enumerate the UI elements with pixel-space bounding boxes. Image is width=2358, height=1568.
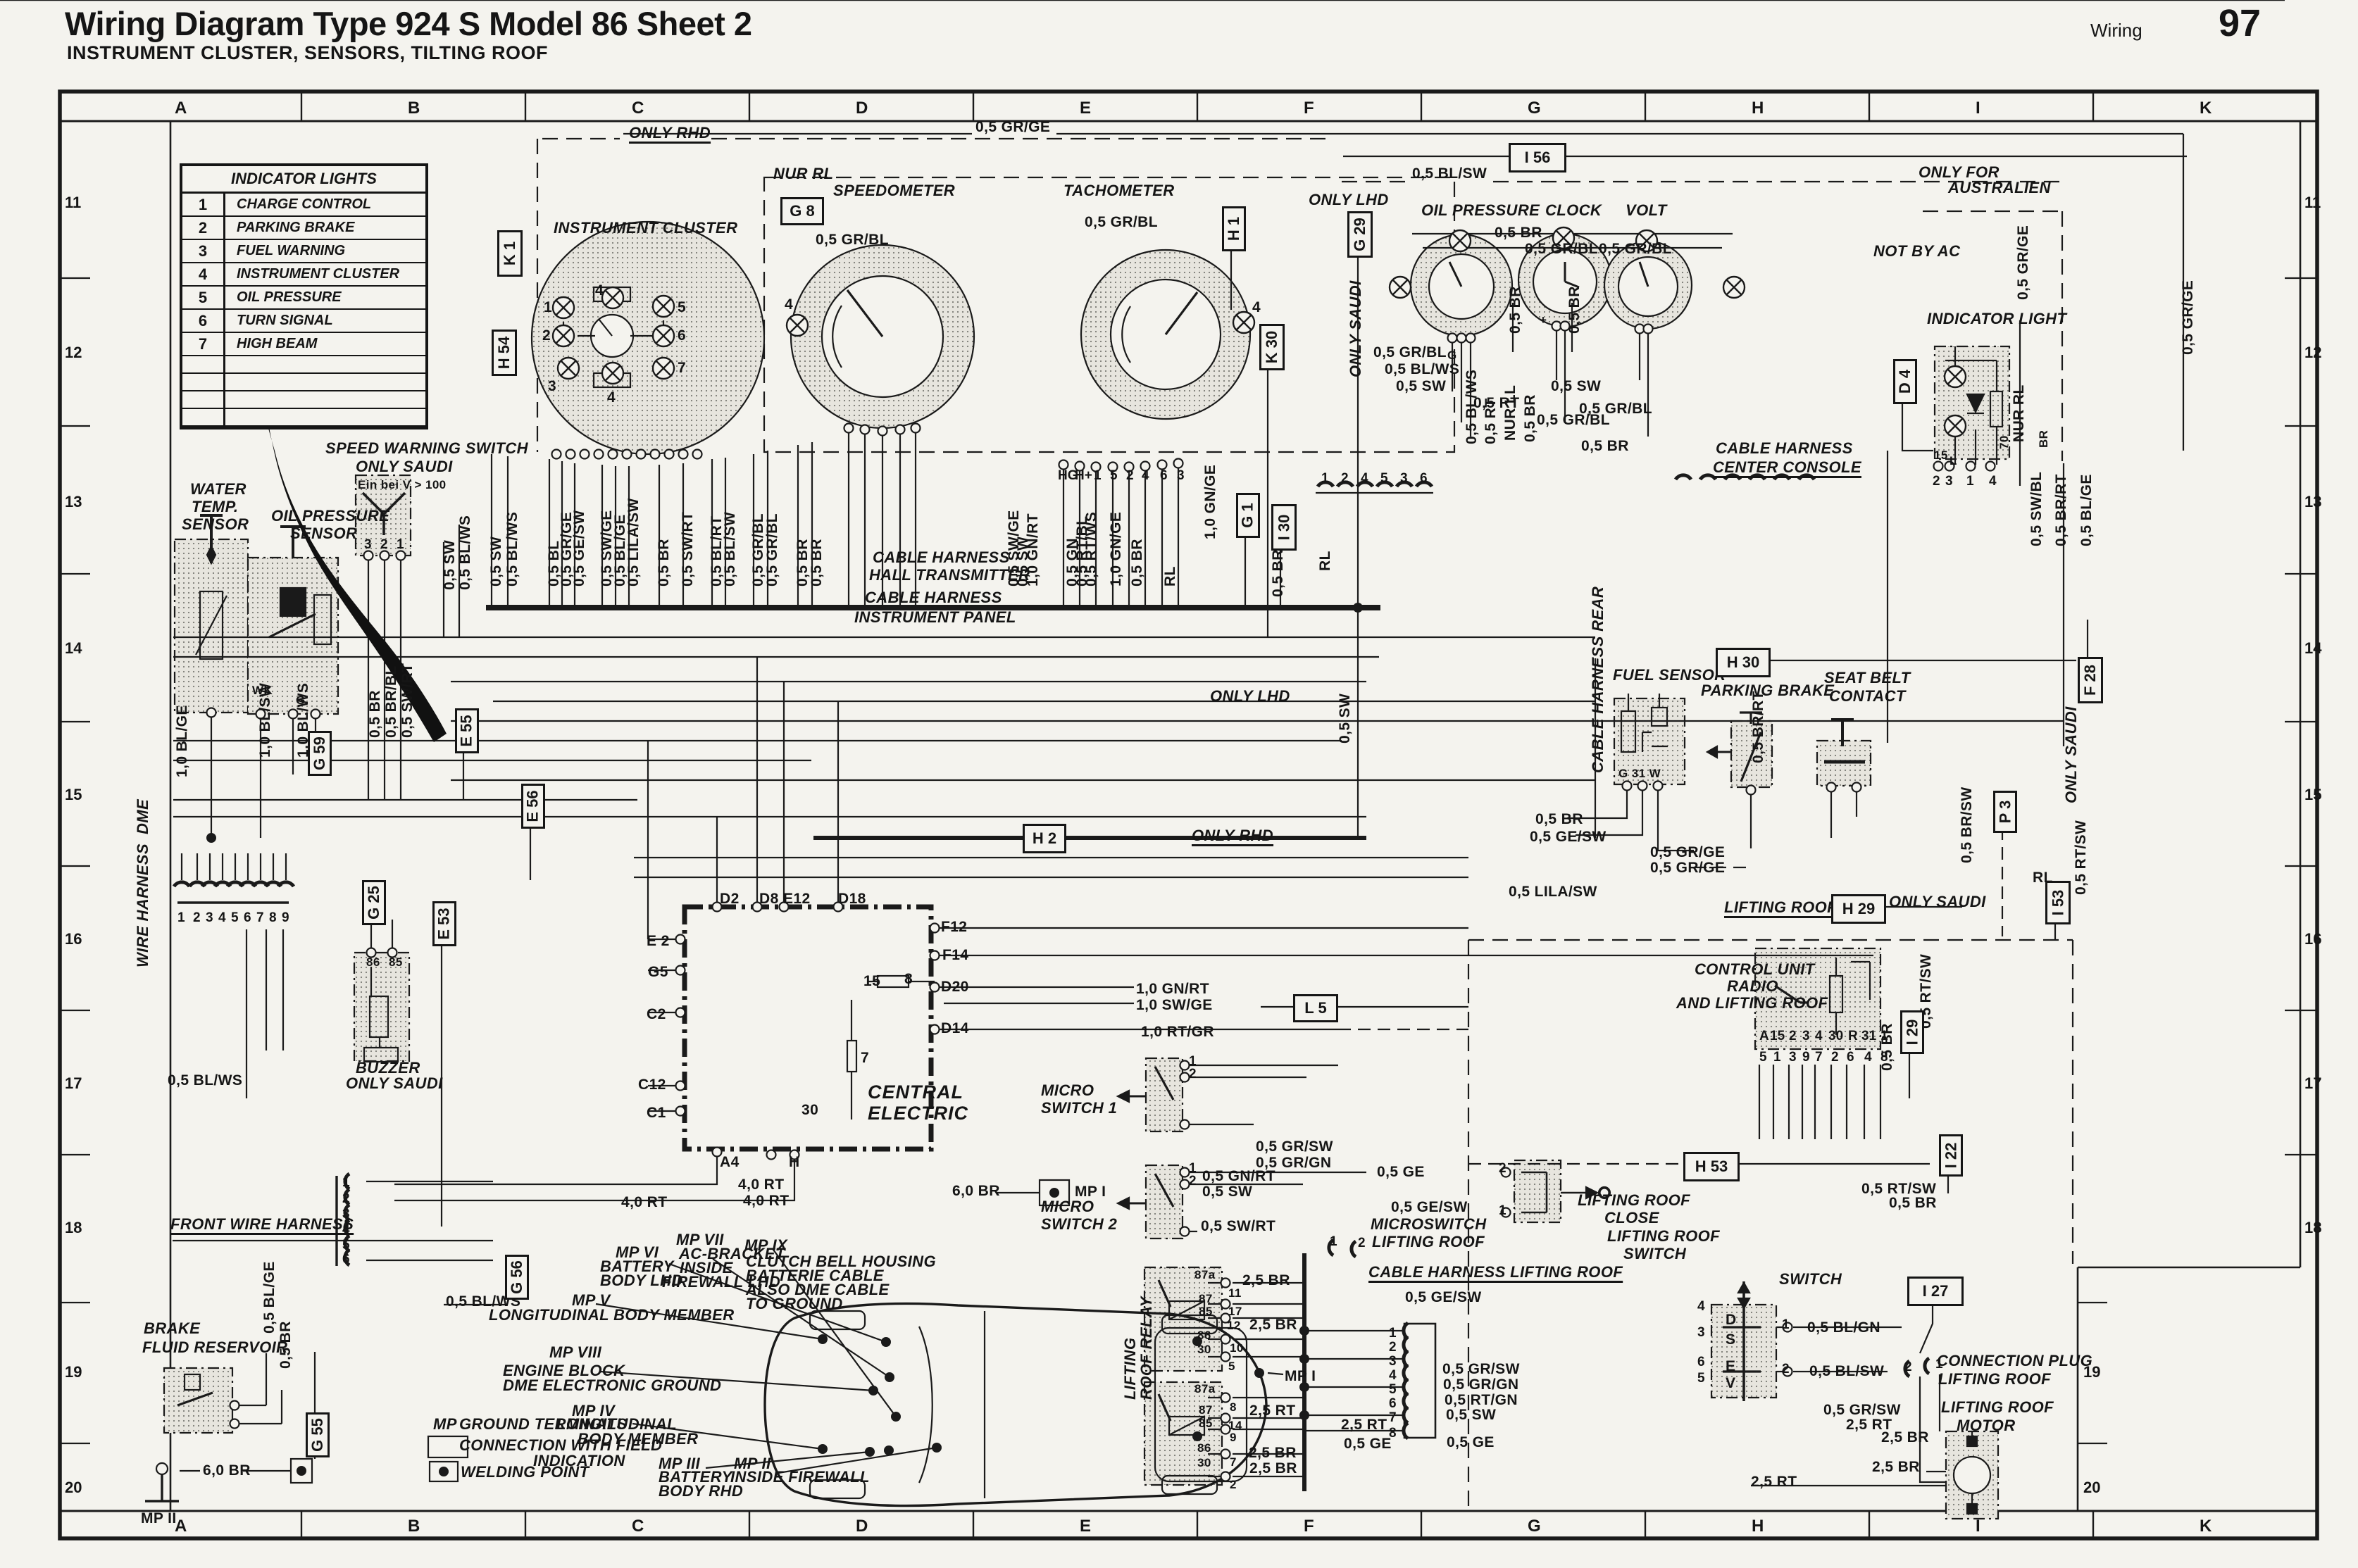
ref-box-k30-label: K 30 — [1263, 331, 1281, 363]
gesw-m1-label: 0,5 GE/SW — [1391, 1200, 1468, 1215]
grid-row-16-right: 16 — [2304, 930, 2321, 948]
welding-point-icon — [297, 1466, 306, 1476]
grid-row-18-right: 18 — [2304, 1219, 2321, 1237]
swD-label: D — [1726, 1312, 1737, 1327]
connector-hook-icon — [174, 882, 189, 886]
g-oil-label: G — [1447, 349, 1457, 361]
swrt-sw-label: 0,5 SW/RT — [400, 663, 415, 738]
legend-row-label: TURN SIGNAL — [225, 310, 425, 332]
r1-87a-label: 87a — [1194, 1269, 1216, 1281]
ce30-label: 30 — [801, 1103, 818, 1117]
rt40c-label: 4,0 RT — [621, 1195, 667, 1210]
control-unit-pins-pin: 5 — [1759, 1050, 1767, 1064]
grbl-c-label: 0,5 GR/BL — [1579, 401, 1652, 416]
cn1-label: 1 — [544, 300, 552, 315]
blsw-l-label: 1,0 BL/SW — [258, 683, 273, 758]
ch2a-label: CABLE HARNESS — [865, 590, 1002, 606]
blws-b2-label: 0,5 BL/WS — [168, 1073, 242, 1088]
p2-label: 2 — [1230, 1479, 1237, 1491]
ref-box-g59: G 59 — [308, 731, 332, 776]
control-unit-pins-pin: 3 — [1789, 1050, 1797, 1064]
swge10-label: 1,0 SW/GE — [1136, 998, 1213, 1012]
gesw-f-label: 0,5 GE/SW — [1530, 829, 1607, 844]
ref-box-g8: G 8 — [780, 197, 824, 225]
ref-box-l5-label: L 5 — [1304, 999, 1326, 1017]
lrs1-label: LIFTING ROOF — [1607, 1229, 1720, 1244]
legend-row-label: HIGH BEAM — [225, 333, 425, 355]
terminal-icon — [637, 450, 646, 459]
terminal-icon — [665, 450, 674, 459]
cb13-label: 0,5 GR/BL — [751, 513, 766, 587]
ceF14-label: F14 — [942, 948, 968, 962]
ref-box-h29: H 29 — [1831, 894, 1886, 924]
brsw-v-label: 0,5 BR/SW — [1959, 786, 1974, 863]
ceC1-label: C1 — [647, 1105, 666, 1120]
terminal-icon — [930, 951, 940, 960]
spdw1-label: SPEED WARNING SWITCH — [325, 441, 528, 456]
tb6-label: 0,5 RT/WS — [1084, 512, 1099, 587]
sw-m-label: 0,5 SW — [1202, 1184, 1252, 1199]
ref-box-h53: H 53 — [1683, 1152, 1740, 1181]
control-unit-terminals-pin: 2 — [1789, 1029, 1797, 1043]
br60a-label: 6,0 BR — [952, 1184, 1000, 1198]
switch-t-label: SWITCH — [1779, 1272, 1842, 1287]
control-unit-terminals-pin: 3 — [1802, 1029, 1810, 1043]
grid-column-H-bottom: H — [1752, 1517, 1764, 1536]
tach4-label: 4 — [1252, 300, 1261, 315]
tb8-label: 0,5 BR — [1130, 539, 1144, 587]
terminal-icon — [1747, 786, 1756, 795]
mp8-3-label: DME ELECTRONIC GROUND — [503, 1378, 721, 1393]
water3-label: SENSOR — [182, 517, 249, 532]
terminal-icon — [207, 708, 216, 717]
sw-r1-label: 0,5 SW — [442, 540, 457, 590]
connector-hook-icon — [1352, 1241, 1356, 1257]
ceD18-label: D18 — [838, 891, 866, 906]
welding-point-icon — [1353, 603, 1363, 613]
oil-pressure-t-label: OIL PRESSURE — [1421, 203, 1540, 218]
br25-6-label: 2,5 BR — [1872, 1460, 1920, 1474]
terminal-icon — [1457, 334, 1466, 343]
legend-row-num: 5 — [182, 287, 225, 308]
control-unit-pins-pin: 6 — [1847, 1050, 1854, 1064]
ref-box-i22-label: I 22 — [1942, 1143, 1960, 1169]
cn4b-label: 4 — [607, 390, 616, 405]
front-harness-pin: 6 — [342, 1253, 350, 1266]
console-pin: 3 — [1400, 472, 1408, 485]
gnrt-m-label: 0,5 GN/RT — [1202, 1169, 1275, 1184]
chc1-label: CABLE HARNESS — [1716, 441, 1853, 456]
dme-pin: 7 — [256, 911, 264, 924]
ref-box-g25: G 25 — [362, 880, 386, 925]
grid-column-H: H — [1752, 99, 1764, 118]
mp9-5-label: TO GROUND — [746, 1296, 843, 1312]
ms1a-label: MICRO — [1041, 1083, 1094, 1098]
lilasw-label: 0,5 LILA/SW — [1509, 884, 1597, 899]
legend-empty-row — [182, 391, 425, 409]
mp4-3-label: BODY MEMBER — [578, 1431, 698, 1447]
cb8-label: 0,5 LILA/SW — [626, 498, 641, 587]
r2-87a-label: 87a — [1194, 1383, 1216, 1395]
connector-hook-icon — [1404, 1423, 1408, 1438]
ref-box-i56: I 56 — [1509, 143, 1566, 173]
cn3-label: 3 — [548, 379, 556, 394]
cn2-label: 2 — [542, 328, 551, 343]
ch2b-label: INSTRUMENT PANEL — [854, 610, 1016, 625]
br25-2-label: 2,5 BR — [1249, 1317, 1297, 1332]
ref-box-g55: G 55 — [306, 1412, 330, 1457]
control-unit-pins-pin: 9 — [1802, 1050, 1810, 1064]
legend-row-label: CHARGE CONTROL — [225, 194, 425, 215]
switch-left-pin: 6 — [1697, 1355, 1705, 1369]
grid-column-F: F — [1304, 99, 1314, 118]
front-harness-pin: 2 — [342, 1192, 350, 1205]
rtgr10-label: 1,0 RT/GR — [1141, 1024, 1214, 1039]
ref-box-g1-label: G 1 — [1239, 503, 1257, 527]
mp2c-2-label: INSIDE FIREWALL — [730, 1469, 870, 1485]
lrr1-label: LIFTING — [1123, 1338, 1138, 1400]
blge-v2-label: 0,5 BL/GE — [2079, 474, 2094, 546]
lifting-roof-connector-pin: 6 — [1389, 1397, 1397, 1410]
ref-box-k1-label: K 1 — [501, 242, 519, 265]
terminal-icon — [1966, 462, 1976, 471]
ref-box-h2-label: H 2 — [1033, 829, 1056, 848]
r1-86-label: 86 — [1197, 1329, 1211, 1341]
legend-row: 5OIL PRESSURE — [182, 287, 425, 310]
console-pin: 1 — [1321, 472, 1329, 485]
terminal-icon — [1180, 1061, 1190, 1070]
grid-row-20-left: 20 — [65, 1479, 82, 1497]
ref-box-g29: G 29 — [1347, 211, 1373, 258]
terminal-icon — [230, 1419, 239, 1429]
cn4-label: 4 — [595, 283, 604, 298]
terminal-icon — [651, 450, 660, 459]
oil2-label: SENSOR — [290, 526, 357, 541]
brbl-sw-label: 0,5 BR/BL — [384, 665, 399, 738]
br-v2-label: 0,5 BR — [1567, 286, 1582, 334]
grid-row-19-left: 19 — [65, 1363, 82, 1381]
ref-box-i29-label: I 29 — [1903, 1020, 1921, 1046]
legend-row-label: PARKING BRAKE — [225, 217, 425, 239]
terminal-icon — [580, 450, 589, 459]
grid-row-11-left: 11 — [65, 194, 81, 212]
terminal-icon — [1638, 782, 1647, 791]
ref-box-i53: I 53 — [2045, 881, 2071, 924]
dme-pin: 1 — [177, 911, 185, 924]
mswlr1-label: MICROSWITCH — [1371, 1217, 1487, 1232]
terminal-icon — [1174, 459, 1183, 468]
br25-3-label: 2,5 BR — [1249, 1445, 1297, 1460]
legend-row-num: 7 — [182, 333, 225, 355]
rt40b-label: 4,0 RT — [743, 1193, 789, 1208]
p17-label: 17 — [1228, 1305, 1242, 1317]
ref-box-h30-label: H 30 — [1727, 653, 1759, 672]
ref-box-g29-label: G 29 — [1351, 218, 1369, 251]
ref-box-h54-label: H 54 — [495, 337, 513, 369]
lifting-roof-connector-pin: 1 — [1389, 1326, 1397, 1340]
fwh-label: FRONT WIRE HARNESS — [170, 1217, 354, 1232]
r1-85-label: 85 — [1199, 1305, 1213, 1317]
grid-column-K: K — [2200, 99, 2212, 118]
p10-label: 10 — [1230, 1342, 1244, 1354]
cb5-label: 0,5 GE/SW — [572, 510, 587, 587]
terminal-icon — [1180, 1073, 1190, 1082]
welding-point-icon — [865, 1447, 875, 1457]
ceD20-label: D20 — [941, 979, 969, 994]
terminal-icon — [693, 450, 702, 459]
micro-switch-1-pin: 2 — [1189, 1067, 1197, 1081]
grid-column-G: G — [1528, 99, 1541, 118]
ind70-label: 70 — [1998, 435, 2010, 449]
grid-row-11-right: 11 — [2304, 194, 2321, 212]
only-lhd-top-label: ONLY LHD — [1309, 192, 1389, 208]
gnrt10-label: 1,0 GN/RT — [1136, 981, 1209, 996]
speed-warning-pin: 1 — [397, 538, 404, 551]
oil1-label: OIL PRESSURE — [271, 508, 389, 524]
front-harness-pin: 3 — [342, 1208, 350, 1221]
lifting-roof-connector-pin: 5 — [1389, 1383, 1397, 1396]
rt25-2-label: 2,5 RT — [1341, 1417, 1387, 1432]
terminal-icon — [1448, 334, 1457, 343]
welding-point-icon — [1254, 1368, 1264, 1378]
welding-point-icon — [818, 1444, 828, 1454]
grbl-speedo-label: 0,5 GR/BL — [816, 232, 889, 247]
dme-pin: 6 — [244, 911, 251, 924]
blsw-s-label: 0,5 BL/SW — [1809, 1364, 1884, 1379]
grge-top-label: 0,5 GR/GE — [975, 120, 1050, 134]
cu3-label: AND LIFTING ROOF — [1676, 996, 1828, 1011]
g31w-label: G 31 W — [1618, 767, 1661, 779]
buz1-label: BUZZER — [356, 1060, 420, 1076]
terminal-icon — [609, 450, 618, 459]
terminal-icon — [861, 425, 870, 434]
rt40a-label: 4,0 RT — [738, 1177, 784, 1192]
p9-label: 9 — [1230, 1431, 1237, 1443]
terminal-icon — [676, 935, 685, 944]
ce1-label: CENTRAL — [868, 1083, 963, 1102]
terminal-icon — [1221, 1335, 1230, 1344]
wiring-diagram-page: Wiring Diagram Type 924 S Model 86 Sheet… — [0, 0, 2358, 1568]
grid-column-F-bottom: F — [1304, 1517, 1314, 1536]
legend-empty-row — [182, 356, 425, 374]
only-rhd-top-label: ONLY RHD — [629, 125, 711, 141]
grid-column-A: A — [175, 99, 187, 118]
br25-1-label: 2,5 BR — [1242, 1273, 1290, 1288]
ref-box-e53-label: E 53 — [435, 908, 454, 939]
grsw-m-label: 0,5 GR/SW — [1256, 1139, 1333, 1154]
dme-pin: 5 — [231, 911, 239, 924]
connection-plug-pin: 2 — [1904, 1360, 1912, 1374]
indicator-lights-legend: INDICATOR LIGHTS1CHARGE CONTROL2PARKING … — [180, 163, 428, 429]
lrs2-label: SWITCH — [1623, 1246, 1686, 1262]
speed-warning-pin: 3 — [364, 538, 372, 551]
park-t-label: PARKING BRAKE — [1701, 683, 1834, 698]
gnge-v2-label: 1,0 GN/GE — [1203, 465, 1218, 539]
ref-box-g8-label: G 8 — [790, 202, 814, 220]
seat1-label: SEAT BELT — [1824, 670, 1911, 686]
welding-point-icon — [1299, 1410, 1309, 1420]
speedometer-label: SPEEDOMETER — [833, 183, 955, 199]
cn7-label: 7 — [678, 360, 686, 375]
dme-pin: 9 — [282, 911, 289, 924]
ref-box-e53: E 53 — [432, 901, 456, 946]
switch-left-pin: 3 — [1697, 1326, 1705, 1339]
ref-box-h53-label: H 53 — [1695, 1158, 1728, 1176]
terminal-icon — [1221, 1393, 1230, 1403]
onlysaudi-h29-label: ONLY SAUDI — [1889, 894, 1986, 910]
not-by-ac-label: NOT BY AC — [1873, 244, 1960, 259]
welding-point-icon — [818, 1334, 828, 1344]
lrr2-label: ROOF RELAY — [1139, 1296, 1154, 1400]
gb2-label: 0,5 BL/WS — [1385, 362, 1459, 377]
rt25-4-label: 2,5 RT — [1751, 1474, 1797, 1489]
grid-column-I-bottom: I — [1976, 1517, 1980, 1536]
lifting-roof-connector-pin: 4 — [1389, 1369, 1397, 1382]
terminal-icon — [930, 1025, 940, 1034]
water2-label: TEMP. — [192, 499, 238, 515]
welding-point-icon — [1192, 1431, 1202, 1441]
legend-row-num: 3 — [182, 240, 225, 262]
blge-l-label: 1,0 BL/GE — [175, 705, 189, 777]
welding-point-icon — [1299, 1354, 1309, 1364]
terminal-icon — [1221, 1472, 1230, 1481]
grid-row-17-right: 17 — [2304, 1074, 2321, 1093]
ref-box-h54: H 54 — [492, 330, 517, 376]
front-harness-pin: 1 — [342, 1176, 350, 1189]
tb7-label: 1,0 GN/GE — [1109, 512, 1123, 587]
spd4-label: 4 — [785, 297, 793, 312]
console-pin: 6 — [1420, 472, 1428, 485]
r2-30-label: 30 — [1197, 1457, 1211, 1469]
ge-m-label: 0,5 GE — [1377, 1165, 1425, 1179]
control-unit-terminals-pin: 15 — [1770, 1029, 1785, 1043]
dme-pin: 3 — [206, 911, 213, 924]
r2-87-label: 87 — [1199, 1404, 1213, 1416]
terminal-icon — [1934, 462, 1943, 471]
ref-box-i22: I 22 — [1939, 1134, 1963, 1177]
gb6-label: 0,5 SW — [1551, 379, 1601, 394]
grsw-b-label: 0,5 GR/SW — [1823, 1403, 1901, 1417]
swbl-v-label: 0,5 SW/BL — [2029, 472, 2044, 546]
ref-box-g56: G 56 — [505, 1255, 529, 1300]
grid-row-15-right: 15 — [2304, 786, 2321, 804]
lc5-label: 0,5 GE — [1447, 1435, 1495, 1450]
ceG5-label: G5 — [648, 965, 668, 979]
control-unit-pins-pin: 8 — [1880, 1050, 1888, 1064]
nurll-label: NUR LL — [1503, 385, 1518, 441]
grid-column-D: D — [856, 99, 868, 118]
ceF12-label: F12 — [941, 920, 967, 934]
indL-label: L — [1950, 455, 1957, 467]
lc1-label: 0,5 GR/SW — [1442, 1362, 1520, 1376]
lc4-label: 0,5 SW — [1446, 1407, 1496, 1422]
terminal-icon — [844, 424, 854, 433]
ms2b-label: SWITCH 2 — [1041, 1217, 1117, 1232]
rl-v2-label: RL — [1318, 551, 1333, 571]
ref-box-p3: P 3 — [1993, 791, 2017, 833]
lrc1-label: LIFTING ROOF — [1578, 1193, 1690, 1208]
legend-row: 1CHARGE CONTROL — [182, 194, 425, 217]
onlysaudi-v1-label: ONLY SAUDI — [2064, 706, 2079, 803]
gl-wp-label: WELDING POINT — [461, 1464, 589, 1480]
ce7-label: 7 — [861, 1050, 869, 1065]
legend-row-label: FUEL WARNING — [225, 240, 425, 262]
indBR-label: BR — [2038, 430, 2050, 448]
ref-box-h2: H 2 — [1023, 824, 1066, 853]
legend-title: INDICATOR LIGHTS — [182, 166, 425, 194]
br-b-label: 0,5 BR — [1889, 1196, 1937, 1210]
terminal-icon — [1644, 325, 1653, 334]
ceA4-label: A4 — [720, 1155, 740, 1169]
grid-column-G-bottom: G — [1528, 1517, 1541, 1536]
grid-row-14-left: 14 — [65, 639, 82, 658]
p5-label: 5 — [1228, 1360, 1235, 1372]
mswlr2-label: LIFTING ROOF — [1372, 1234, 1485, 1250]
legend-row: 3FUEL WARNING — [182, 240, 425, 263]
ref-box-h1-label: H 1 — [1225, 217, 1243, 241]
br-c-label: 0,5 BR — [1581, 439, 1629, 453]
p14-label: 14 — [1228, 1419, 1242, 1431]
grid-row-17-left: 17 — [65, 1074, 82, 1093]
mp5-2-label: LONGITUDINAL BODY MEMBER — [489, 1307, 735, 1323]
ref-box-i27-label: I 27 — [1923, 1282, 1949, 1300]
ceD2-label: D2 — [720, 891, 740, 906]
grid-row-15-left: 15 — [65, 786, 82, 804]
ge05-label: 0,5 GE — [1344, 1436, 1392, 1451]
tach-pin: 4 — [1142, 469, 1149, 482]
legend-row-num: 2 — [182, 217, 225, 239]
terminal-icon — [1466, 334, 1476, 343]
b85-label: 85 — [389, 956, 403, 968]
p12-label: 12 — [1227, 1319, 1241, 1331]
br-gauges-label: 0,5 BR — [1495, 225, 1542, 240]
ref-box-h29-label: H 29 — [1842, 900, 1875, 918]
tach-pin: 6 — [1160, 469, 1168, 482]
ref-box-e55-label: E 55 — [458, 715, 476, 746]
rtsw-v1-label: 0,5 RT/SW — [2073, 820, 2088, 895]
br-sw1-label: 0,5 BR — [368, 690, 382, 738]
terminal-icon — [679, 450, 688, 459]
micro-switch-2-pin: 2 — [1189, 1174, 1197, 1188]
control-unit-pins-pin: 2 — [1831, 1050, 1839, 1064]
welding-point-icon — [1049, 1188, 1059, 1198]
grbl-tach-label: 0,5 GR/BL — [1085, 215, 1158, 230]
ms1b-label: SWITCH 1 — [1041, 1100, 1117, 1116]
terminal-icon — [623, 450, 632, 459]
indicator-pins-pin: 1 — [1966, 475, 1974, 488]
cp1-label: CONNECTION PLUG — [1937, 1353, 2092, 1369]
chc2-label: CENTER CONSOLE — [1713, 460, 1861, 475]
swV-label: V — [1726, 1376, 1735, 1391]
ref-box-g25-label: G 25 — [365, 886, 383, 920]
r2-85-label: 85 — [1199, 1417, 1213, 1429]
ceE2-label: E 2 — [647, 934, 670, 948]
lr-head-label: LIFTING ROOF — [1724, 900, 1837, 915]
terminal-icon — [364, 551, 373, 560]
r2-86-label: 86 — [1197, 1442, 1211, 1454]
only-lhd-mid-label: ONLY LHD — [1210, 689, 1290, 704]
legend-row-num: 4 — [182, 263, 225, 285]
welding-point-icon — [891, 1412, 901, 1422]
lifting-roof-connector-pin: 7 — [1389, 1411, 1397, 1424]
br25-5-label: 2,5 BR — [1881, 1430, 1929, 1445]
swrt-m-label: 0,5 SW/RT — [1201, 1219, 1275, 1234]
terminal-icon — [930, 924, 940, 933]
blsw-top-label: 0,5 BL/SW — [1412, 166, 1487, 181]
clock-t-label: CLOCK — [1545, 203, 1602, 218]
ref-box-l5: L 5 — [1293, 994, 1338, 1022]
cb1-label: 0,5 SW — [489, 537, 504, 587]
